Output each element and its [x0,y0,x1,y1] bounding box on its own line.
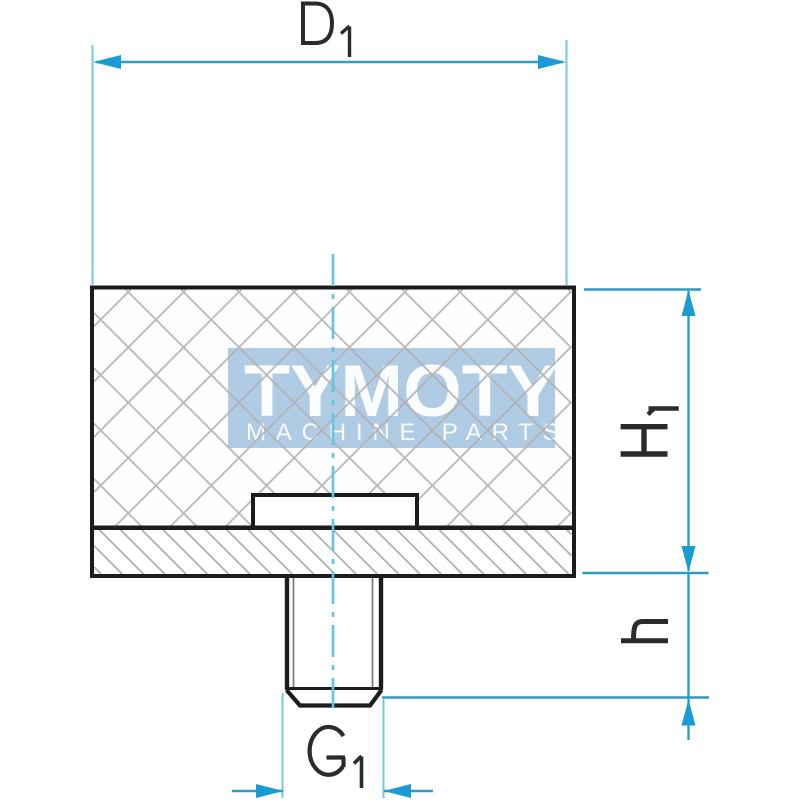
svg-text:MACHINE PARTS: MACHINE PARTS [246,419,569,446]
